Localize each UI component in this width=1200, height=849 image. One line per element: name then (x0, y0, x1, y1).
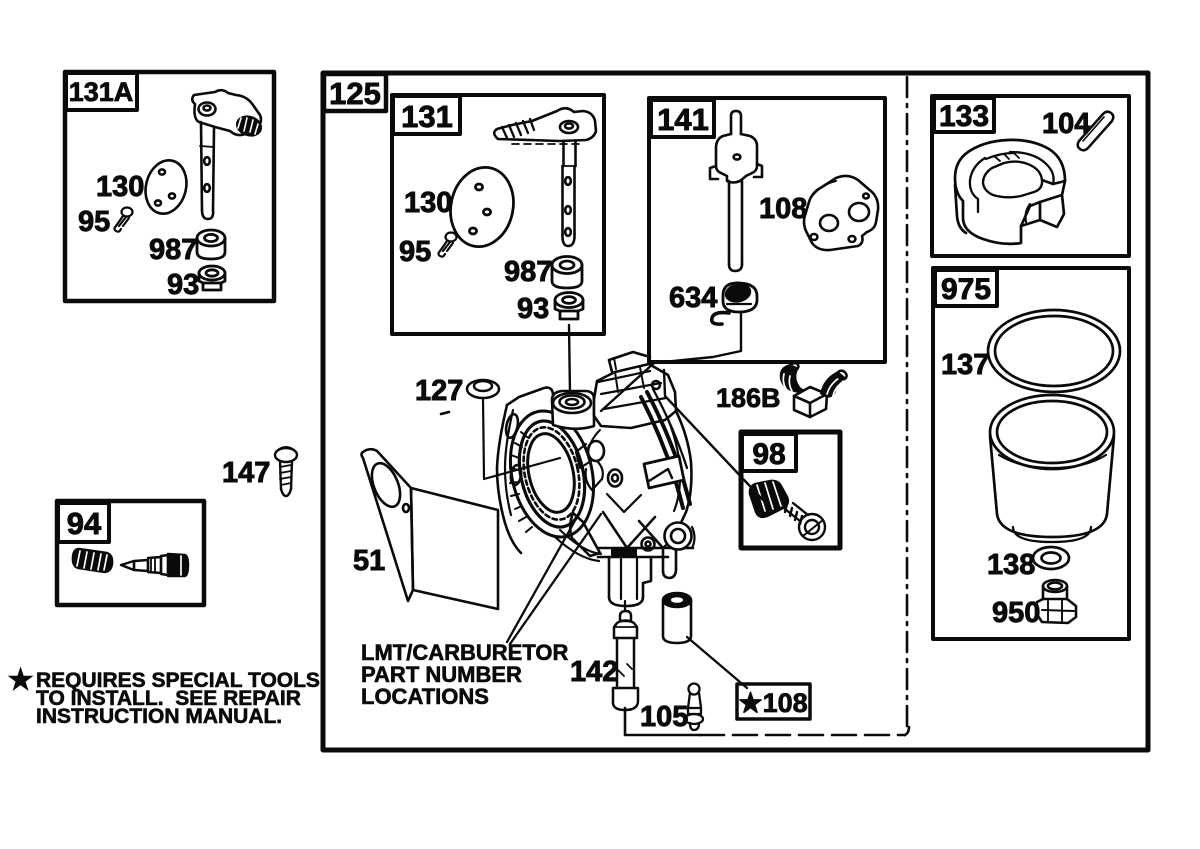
svg-text:98: 98 (752, 438, 785, 471)
svg-text:975: 975 (941, 273, 991, 306)
svg-text:95: 95 (78, 206, 110, 238)
svg-text:95: 95 (399, 236, 431, 268)
svg-text:LOCATIONS: LOCATIONS (361, 684, 489, 709)
svg-text:133: 133 (939, 100, 989, 133)
svg-text:51: 51 (353, 545, 385, 577)
svg-text:125: 125 (329, 76, 381, 111)
svg-text:127: 127 (415, 375, 463, 407)
svg-text:186B: 186B (716, 383, 781, 413)
svg-text:INSTRUCTION MANUAL.: INSTRUCTION MANUAL. (36, 705, 282, 728)
svg-text:130: 130 (96, 171, 144, 203)
svg-text:987: 987 (149, 234, 197, 266)
svg-text:93: 93 (517, 293, 549, 325)
svg-text:987: 987 (504, 256, 552, 288)
svg-text:137: 137 (941, 349, 989, 381)
svg-text:★: ★ (8, 664, 33, 695)
svg-text:108: 108 (759, 193, 807, 225)
svg-text:94: 94 (67, 506, 102, 541)
svg-text:130: 130 (404, 187, 452, 219)
svg-text:131: 131 (401, 99, 453, 134)
svg-text:142: 142 (570, 656, 618, 688)
svg-text:141: 141 (657, 102, 709, 137)
svg-text:950: 950 (992, 597, 1040, 629)
svg-text:★108: ★108 (738, 688, 807, 718)
svg-text:93: 93 (167, 269, 199, 301)
svg-text:131A: 131A (69, 77, 134, 107)
svg-text:634: 634 (669, 282, 717, 314)
svg-text:147: 147 (222, 457, 270, 489)
svg-text:105: 105 (640, 701, 688, 733)
svg-text:138: 138 (987, 549, 1035, 581)
